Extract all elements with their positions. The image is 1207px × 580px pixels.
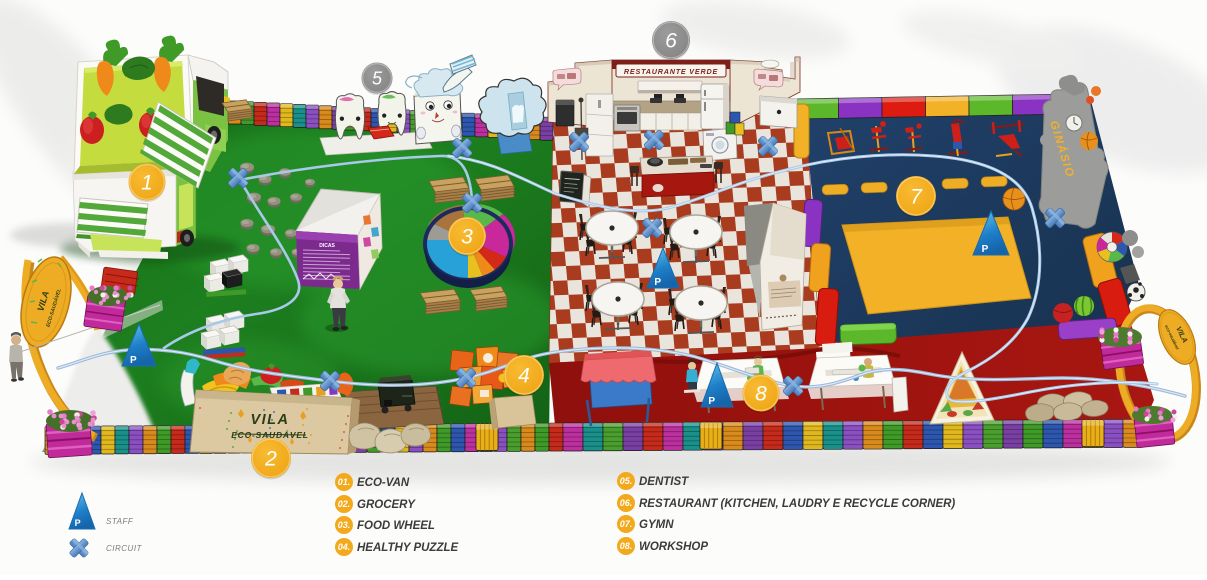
svg-text:P: P	[130, 355, 137, 366]
svg-text:01.: 01.	[338, 477, 351, 487]
svg-text:1: 1	[141, 172, 153, 195]
svg-text:7: 7	[910, 186, 923, 209]
svg-text:08.: 08.	[620, 541, 633, 551]
svg-text:STAFF: STAFF	[106, 517, 134, 526]
svg-text:4: 4	[518, 365, 530, 388]
svg-text:5: 5	[372, 68, 383, 88]
svg-text:3: 3	[461, 226, 473, 249]
svg-text:03.: 03.	[338, 520, 351, 530]
svg-text:DICAS: DICAS	[319, 243, 335, 249]
svg-text:2: 2	[264, 448, 277, 471]
svg-text:DENTIST: DENTIST	[639, 476, 689, 488]
svg-text:RESTAURANT (KITCHEN, LAUDRY E: RESTAURANT (KITCHEN, LAUDRY E RECYCLE CO…	[639, 498, 955, 510]
svg-text:P: P	[982, 244, 989, 255]
svg-text:WORKSHOP: WORKSHOP	[639, 541, 708, 553]
svg-text:RESTAURANTE VERDE: RESTAURANTE VERDE	[624, 67, 718, 76]
svg-text:FOOD WHEEL: FOOD WHEEL	[357, 520, 435, 532]
svg-text:02.: 02.	[338, 499, 351, 509]
svg-text:HEALTHY PUZZLE: HEALTHY PUZZLE	[357, 542, 458, 554]
svg-text:GROCERY: GROCERY	[357, 499, 416, 511]
svg-text:07.: 07.	[620, 519, 633, 529]
svg-text:6: 6	[665, 30, 677, 53]
svg-text:06.: 06.	[620, 498, 633, 508]
svg-text:P: P	[654, 277, 661, 288]
svg-text:P: P	[75, 518, 81, 528]
svg-text:ECO-VAN: ECO-VAN	[357, 477, 410, 489]
svg-text:05.: 05.	[620, 476, 633, 486]
svg-text:8: 8	[755, 383, 767, 406]
svg-text:CIRCUIT: CIRCUIT	[106, 544, 143, 553]
svg-text:GYMN: GYMN	[639, 519, 674, 531]
svg-text:VILA: VILA	[250, 412, 289, 428]
svg-text:04.: 04.	[338, 542, 351, 552]
svg-text:P: P	[708, 396, 715, 407]
